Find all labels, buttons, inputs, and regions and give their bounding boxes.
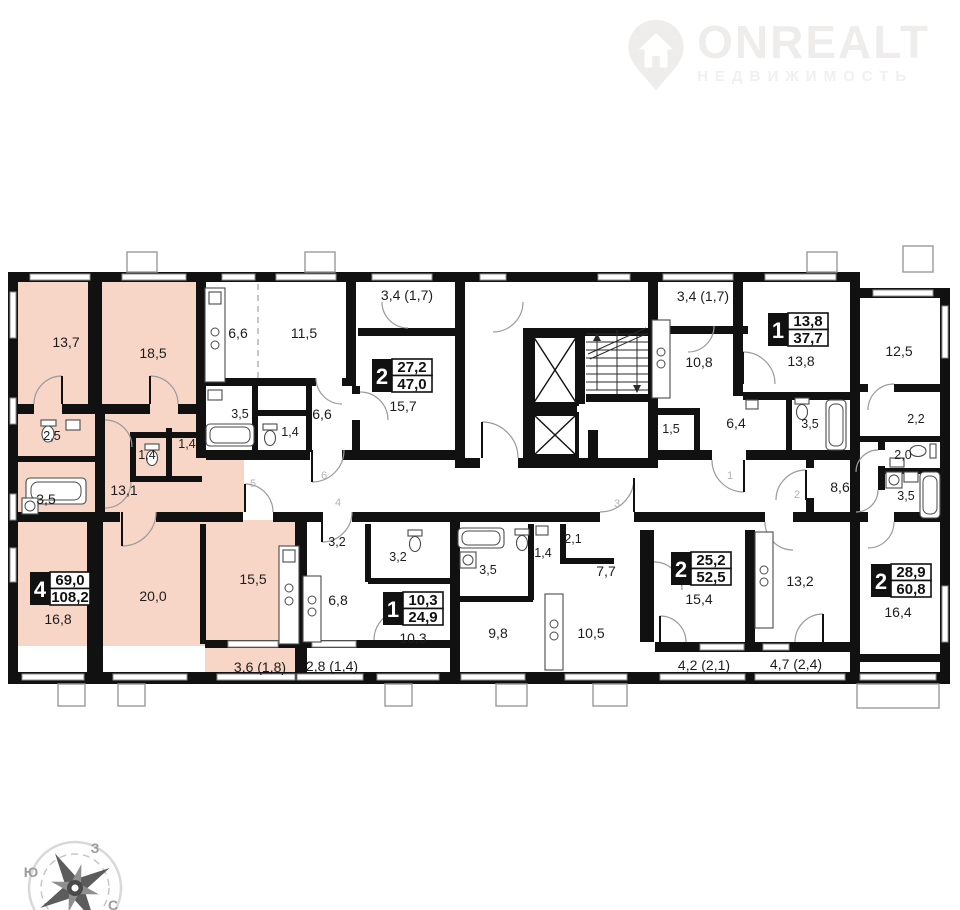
badge-living-area: 69,0 [55, 572, 84, 589]
apartment-badge-2room-a: 2 27,2 47,0 [372, 359, 432, 393]
room-label: 13,1 [110, 482, 137, 498]
toilet-icon [910, 444, 936, 458]
badge-rooms: 1 [387, 597, 399, 622]
room-label: 10,5 [577, 625, 604, 641]
room-label: 1,5 [662, 422, 679, 436]
corridor-unit-number: 4 [335, 497, 341, 509]
badge-total-area: 37,7 [793, 330, 822, 347]
logo-subtitle: НЕДВИЖИМОСТЬ [697, 68, 930, 85]
room-label: 1,4 [534, 546, 551, 560]
room-label: 7,7 [596, 563, 616, 579]
corridor-unit-number: 5 [250, 478, 256, 490]
corridor-unit-number: 2 [794, 489, 800, 501]
room-label: 3,6 (1,8) [234, 659, 286, 675]
badge-rooms: 2 [675, 557, 687, 582]
elevator-icons [533, 336, 577, 456]
room-label: 16,4 [884, 604, 911, 620]
room-label: 1,4 [281, 425, 298, 439]
room-label: 10,8 [685, 354, 712, 370]
room-label: 4,2 (2,1) [678, 657, 730, 673]
room-label: 3,5 [801, 417, 818, 431]
toilet-icon [408, 530, 422, 552]
room-label: 2,5 [43, 429, 60, 443]
apartment-badge-2room-b: 2 25,2 52,5 [671, 552, 731, 586]
room-label: 3,5 [231, 407, 248, 421]
floor-plan: 13,7 18,5 2,5 1,4 1,4 3,5 13,1 16,8 20,0… [0, 0, 960, 910]
compass-icon: З Ю С [20, 833, 129, 910]
room-label: 2,1 [564, 532, 581, 546]
toilet-icon [263, 424, 277, 446]
room-label: 11,5 [291, 325, 317, 341]
room-label: 6,6 [228, 325, 248, 341]
room-label: 3,2 [389, 550, 406, 564]
room-label: 13,8 [787, 353, 814, 369]
badge-living-area: 10,3 [408, 592, 437, 609]
room-label: 18,5 [139, 345, 166, 361]
room-label: 12,5 [885, 343, 912, 359]
staircase-icon [586, 328, 648, 394]
room-label: 13,7 [52, 334, 79, 350]
room-label: 1,4 [178, 437, 195, 451]
room-label: 4,7 (2,4) [770, 656, 822, 672]
room-label: 3,4 (1,7) [381, 287, 433, 303]
room-label: 2,2 [907, 412, 924, 426]
room-label: 3,5 [479, 563, 496, 577]
logo-brand: ONREALT [697, 18, 930, 66]
apartment-badge-4room: 4 69,0 108,2 [30, 572, 90, 606]
toilet-icon [515, 529, 529, 551]
badge-rooms: 2 [376, 364, 388, 389]
room-label: 2,0 [894, 448, 911, 462]
badge-total-area: 52,5 [696, 569, 725, 586]
badge-rooms: 1 [772, 318, 784, 343]
room-label: 8,6 [830, 479, 850, 495]
compass-north-label: С [108, 897, 118, 910]
room-label: 3,5 [897, 489, 914, 503]
compass-west-label: З [91, 840, 100, 856]
logo: ONREALT НЕДВИЖИМОСТЬ [625, 18, 930, 98]
room-label: 15,4 [685, 591, 712, 607]
corridor-unit-number: 1 [727, 470, 733, 482]
corridor-unit-numbers: 5 6 4 3 1 2 [250, 470, 800, 510]
room-label: 16,8 [44, 611, 71, 627]
corridor-unit-number: 6 [321, 470, 327, 482]
badge-total-area: 60,8 [896, 581, 925, 598]
room-label: 3,4 (1,7) [677, 288, 729, 304]
corridor-unit-number: 3 [614, 498, 620, 510]
room-label: 1,4 [138, 448, 155, 462]
badge-total-area: 108,2 [51, 589, 89, 606]
room-label: 6,6 [312, 406, 332, 422]
badge-living-area: 25,2 [696, 552, 725, 569]
room-label: 6,8 [328, 592, 348, 608]
room-label: 20,0 [139, 588, 166, 604]
room-label: 13,2 [786, 573, 813, 589]
badge-total-area: 47,0 [397, 376, 426, 393]
badge-total-area: 24,9 [408, 609, 437, 626]
apartment-badge-1room-a: 1 13,8 37,7 [768, 313, 828, 347]
room-label: 15,5 [239, 571, 266, 587]
badge-living-area: 13,8 [793, 313, 822, 330]
room-label: 2,8 (1,4) [306, 658, 358, 674]
room-label: 9,8 [488, 625, 508, 641]
badge-living-area: 28,9 [896, 564, 925, 581]
badge-living-area: 27,2 [397, 359, 426, 376]
compass-south-label: Ю [24, 864, 38, 880]
room-label: 3,5 [36, 491, 56, 507]
room-label: 3,2 [328, 535, 345, 549]
floorplan-page: ONREALT НЕДВИЖИМОСТЬ [0, 0, 960, 910]
badge-rooms: 4 [34, 577, 47, 602]
apartment-badge-1room-b: 1 10,3 24,9 [383, 592, 443, 626]
logo-pin-house-icon [625, 18, 687, 98]
room-label: 10,3 [399, 630, 426, 646]
room-label: 6,4 [726, 415, 746, 431]
apartment-badge-2room-c: 2 28,9 60,8 [871, 564, 931, 598]
badge-rooms: 2 [875, 569, 887, 594]
room-label: 15,7 [389, 398, 416, 414]
